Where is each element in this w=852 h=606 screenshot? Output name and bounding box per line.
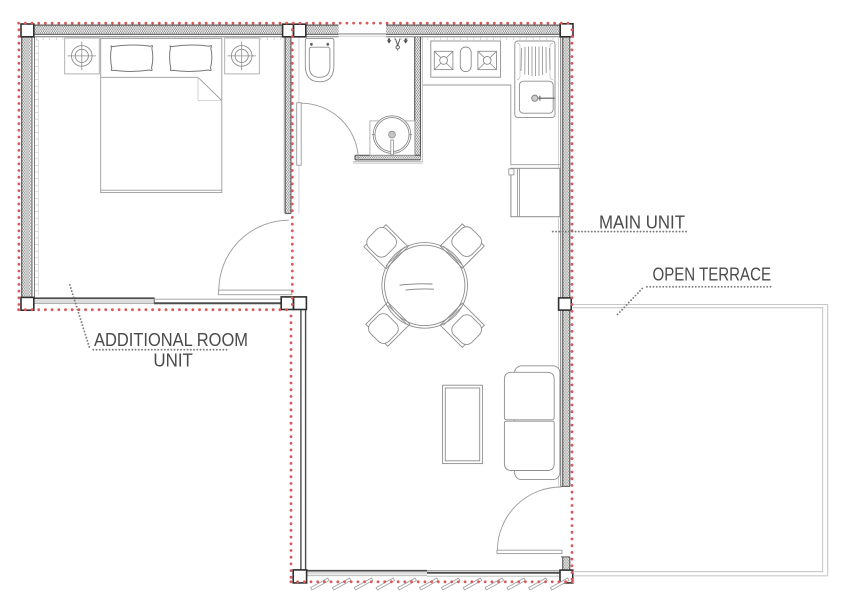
svg-text:OPEN TERRACE: OPEN TERRACE — [653, 265, 772, 285]
svg-text:ADDITIONAL ROOM: ADDITIONAL ROOM — [94, 330, 248, 350]
svg-text:MAIN UNIT: MAIN UNIT — [599, 212, 685, 232]
svg-text:UNIT: UNIT — [153, 350, 193, 370]
